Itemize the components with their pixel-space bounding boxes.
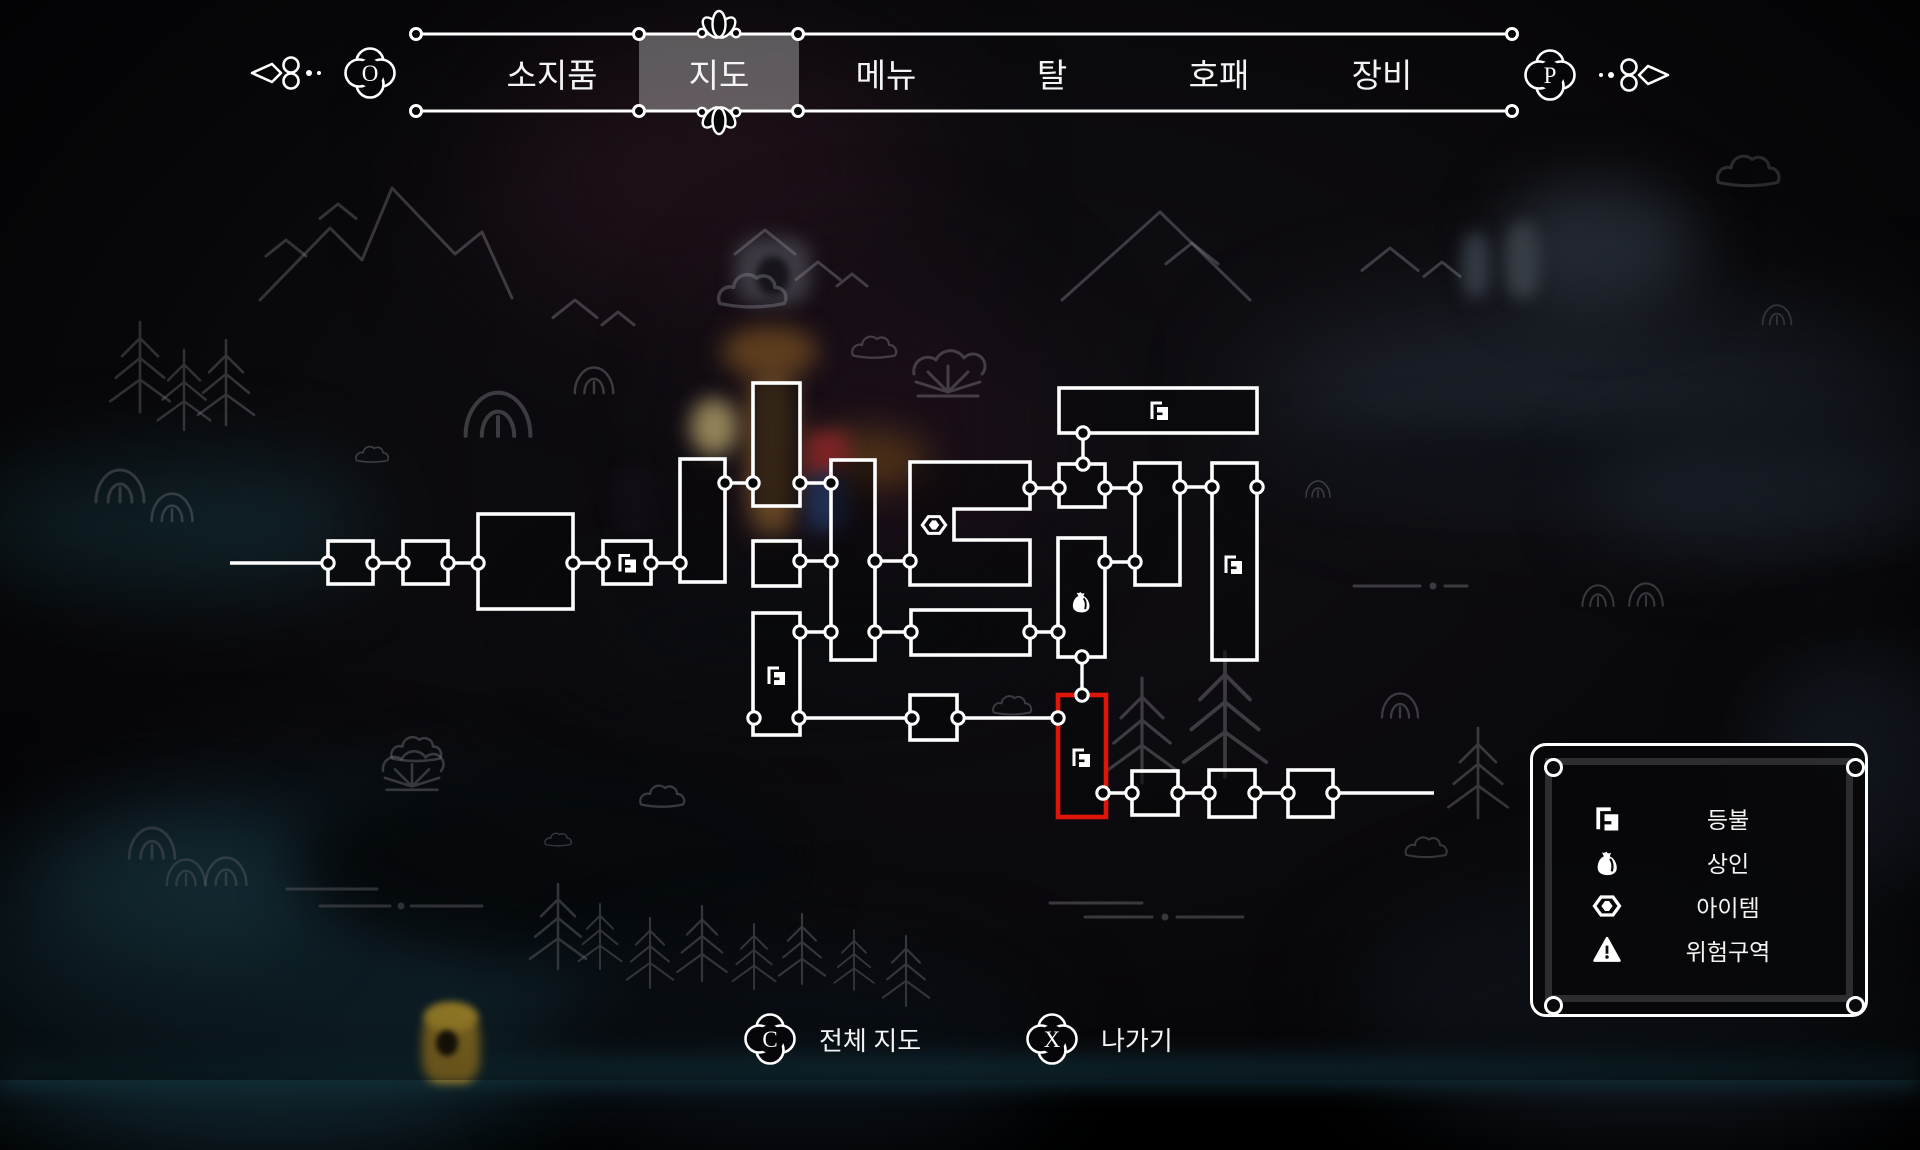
tab-label: 메뉴 <box>856 49 917 97</box>
button-key-label: X <box>1044 1027 1061 1052</box>
prompt-button-C[interactable]: C전체 지도 <box>741 1010 921 1068</box>
legend-corner-loop <box>1846 996 1865 1015</box>
legend-corner-loop <box>1544 996 1563 1015</box>
prompt-label: 전체 지도 <box>819 1021 921 1058</box>
top-tab-bar: 소지품지도메뉴탈호패장비 <box>0 0 1920 160</box>
button-key-label: C <box>762 1027 777 1052</box>
tab-4[interactable]: 호패 <box>1139 34 1299 111</box>
tab-label: 장비 <box>1352 49 1413 97</box>
merchant-icon <box>1592 847 1622 877</box>
tab-label: 소지품 <box>506 49 597 97</box>
tab-label: 탈 <box>1037 49 1067 97</box>
tab-label: 지도 <box>689 49 750 97</box>
map-legend: 등불상인아이템위험구역 <box>1530 743 1868 1017</box>
gem-icon <box>1592 891 1622 921</box>
legend-row-gem: 아이템 <box>1533 884 1871 928</box>
legend-corner-loop <box>1544 758 1563 777</box>
legend-label: 위험구역 <box>1653 933 1803 967</box>
tab-0[interactable]: 소지품 <box>472 34 632 111</box>
legend-label: 아이템 <box>1653 889 1803 923</box>
tab-label: 호패 <box>1189 49 1250 97</box>
tab-1[interactable]: 지도 <box>639 34 799 111</box>
tab-5[interactable]: 장비 <box>1302 34 1462 111</box>
prompt-label: 나가기 <box>1101 1021 1173 1058</box>
legend-label: 등불 <box>1653 801 1803 835</box>
danger-icon <box>1592 935 1622 965</box>
button-clover-icon: C <box>741 1010 799 1068</box>
legend-row-danger: 위험구역 <box>1533 928 1871 972</box>
lantern-icon <box>1592 803 1622 833</box>
legend-corner-loop <box>1846 758 1865 777</box>
legend-row-merchant: 상인 <box>1533 840 1871 884</box>
tab-3[interactable]: 탈 <box>972 34 1132 111</box>
tab-2[interactable]: 메뉴 <box>806 34 966 111</box>
button-clover-icon: X <box>1023 1010 1081 1068</box>
legend-row-lantern: 등불 <box>1533 796 1871 840</box>
legend-label: 상인 <box>1653 845 1803 879</box>
prompt-button-X[interactable]: X나가기 <box>1023 1010 1173 1068</box>
